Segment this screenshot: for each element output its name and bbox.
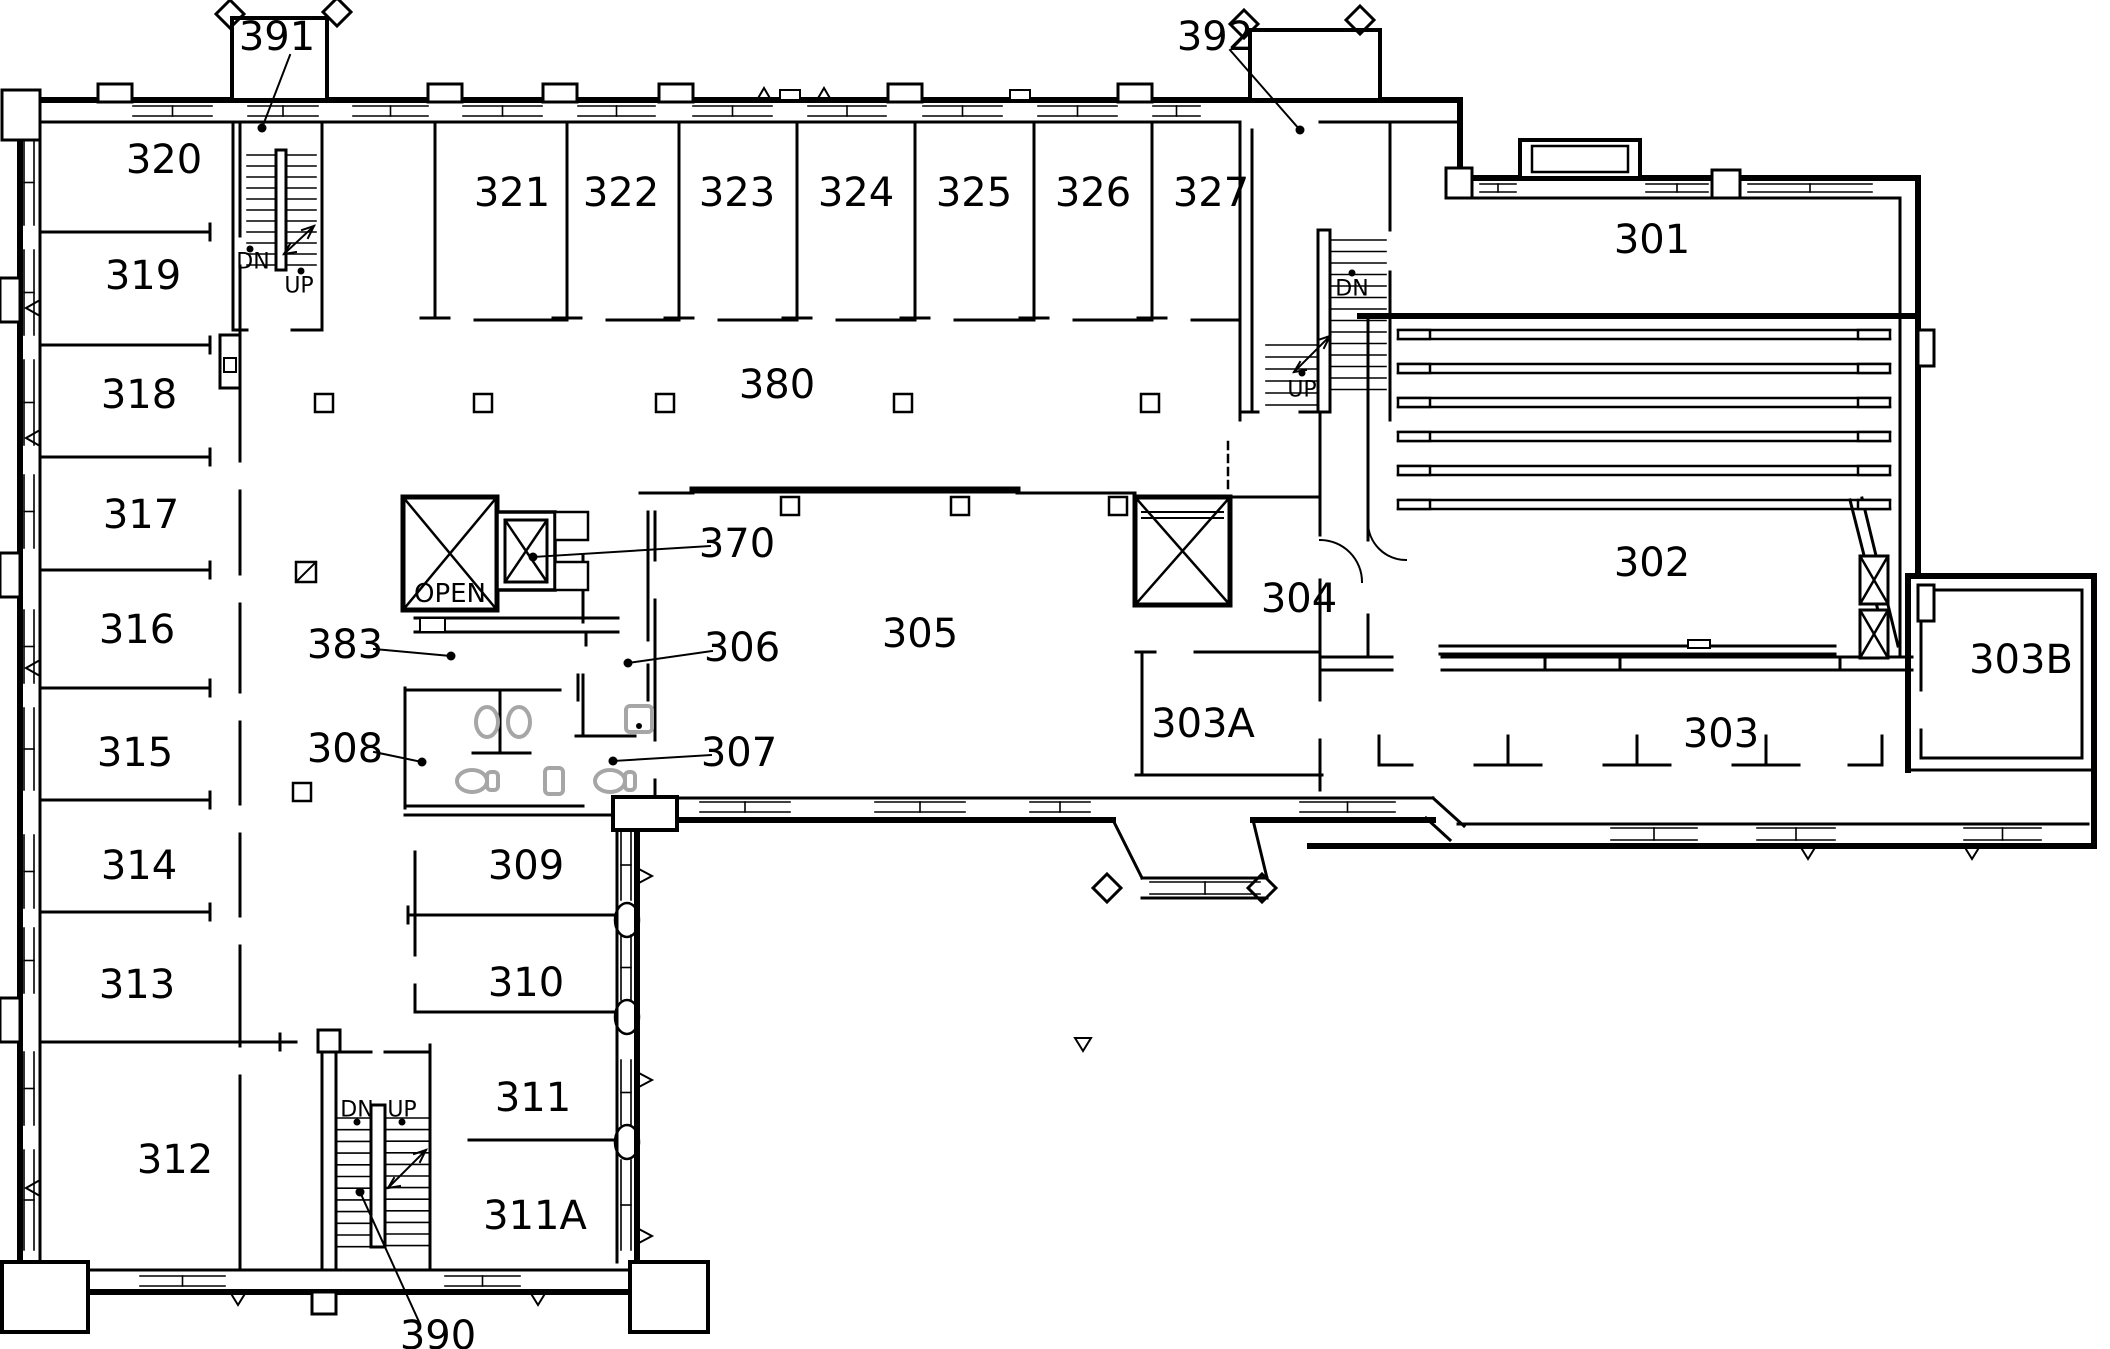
room-label-307: 307 <box>701 730 777 776</box>
room-label-305: 305 <box>882 611 958 657</box>
room-label-318: 318 <box>101 372 177 418</box>
room-label-303: 303 <box>1683 711 1759 757</box>
room-label-322: 322 <box>583 170 659 216</box>
room-label-308: 308 <box>307 726 383 772</box>
stair-390-up-label: UP <box>387 1098 416 1123</box>
stair-390-dn-label: DN <box>340 1098 373 1123</box>
room-label-317: 317 <box>103 492 179 538</box>
room-label-301: 301 <box>1614 217 1690 263</box>
room-label-320: 320 <box>126 137 202 183</box>
room-label-314: 314 <box>101 843 177 889</box>
room-label-383: 383 <box>307 622 383 668</box>
stair-392-up-label: UP <box>1287 378 1316 403</box>
room-label-370: 370 <box>699 521 775 567</box>
room-label-313: 313 <box>99 962 175 1008</box>
room-label-380: 380 <box>739 362 815 408</box>
room-label-326: 326 <box>1055 170 1131 216</box>
room-label-315: 315 <box>97 730 173 776</box>
room-label-311: 311 <box>495 1075 571 1121</box>
floor-plan-page: 301302303303A303B30430530630730830931031… <box>0 0 2110 1349</box>
room-label-316: 316 <box>99 607 175 653</box>
stair-392-dn-label: DN <box>1335 277 1368 302</box>
room-label-303A: 303A <box>1151 701 1255 747</box>
room-label-302: 302 <box>1614 540 1690 586</box>
room-label-306: 306 <box>704 625 780 671</box>
room-label-319: 319 <box>105 253 181 299</box>
room-label-304: 304 <box>1261 576 1337 622</box>
room-label-311A: 311A <box>483 1193 587 1239</box>
stair-391-dn-label: DN <box>236 250 269 275</box>
room-label-390: 390 <box>400 1313 476 1349</box>
room-label-392: 392 <box>1177 14 1253 60</box>
room-label-327: 327 <box>1173 170 1249 216</box>
room-label-312: 312 <box>137 1137 213 1183</box>
room-label-324: 324 <box>818 170 894 216</box>
floor-plan: 301302303303A303B30430530630730830931031… <box>0 0 2110 1349</box>
room-label-321: 321 <box>474 170 550 216</box>
room-label-303B: 303B <box>1969 637 2073 683</box>
room-label-309: 309 <box>488 843 564 889</box>
room-label-391: 391 <box>239 14 315 60</box>
stair-391-up-label: UP <box>284 274 313 299</box>
room-label-323: 323 <box>699 170 775 216</box>
open-shaft-label: OPEN <box>414 579 486 609</box>
room-label-325: 325 <box>936 170 1012 216</box>
room-label-310: 310 <box>488 960 564 1006</box>
